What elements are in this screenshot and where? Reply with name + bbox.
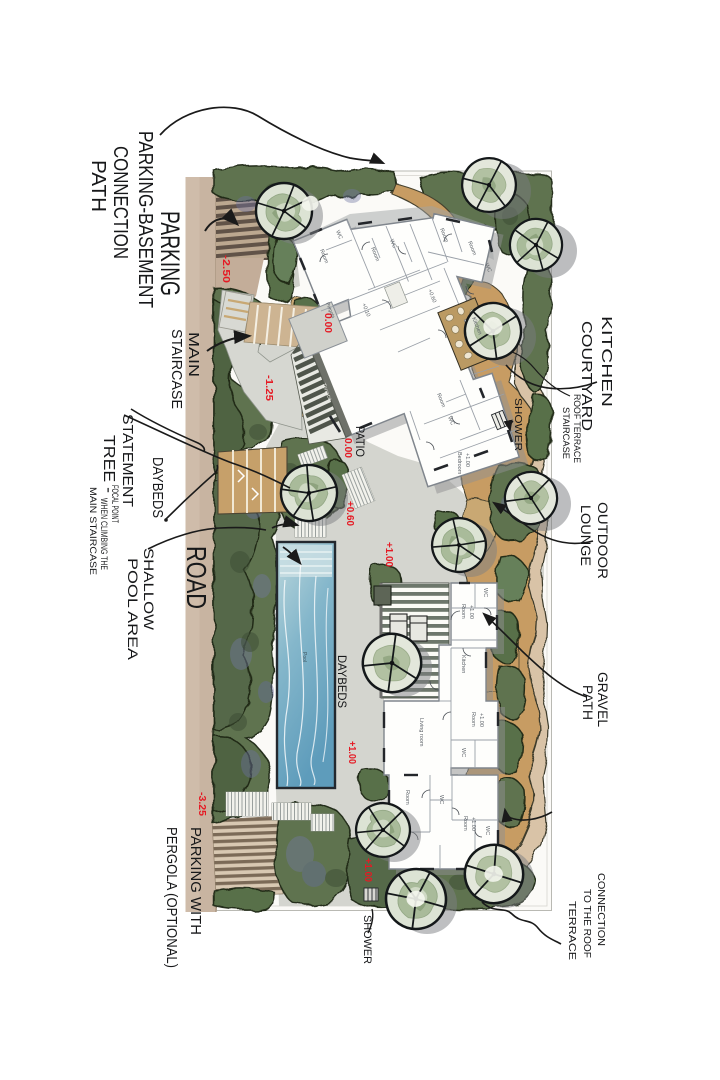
svg-text:MAIN: MAIN <box>185 332 202 377</box>
svg-text:WC: WC <box>484 826 490 835</box>
svg-text:OUTDOOR: OUTDOOR <box>595 502 611 579</box>
svg-text:+1.00: +1.00 <box>464 453 470 467</box>
svg-text:PATH: PATH <box>87 160 109 212</box>
svg-text:+1.00: +1.00 <box>478 713 484 727</box>
svg-text:+1.00: +1.00 <box>468 605 474 619</box>
svg-text:GRAVEL: GRAVEL <box>595 672 611 727</box>
svg-text:PERGOLA (OPTIONAL): PERGOLA (OPTIONAL) <box>163 827 180 968</box>
svg-text:PARKING WITH: PARKING WITH <box>187 827 204 935</box>
svg-text:POOL AREA: POOL AREA <box>125 558 141 661</box>
svg-text:KITCHEN: KITCHEN <box>598 316 615 407</box>
svg-text:DAYBEDS: DAYBEDS <box>335 655 349 708</box>
svg-text:Bedroom: Bedroom <box>456 452 462 475</box>
svg-text:WHEN CLIMBING THE: WHEN CLIMBING THE <box>99 498 109 570</box>
svg-text:Room: Room <box>460 604 466 619</box>
svg-text:WC: WC <box>482 588 488 597</box>
svg-text:CONNECTION: CONNECTION <box>109 146 131 259</box>
svg-text:FOCAL POINT: FOCAL POINT <box>110 485 120 523</box>
svg-text:Room: Room <box>404 790 410 805</box>
svg-text:LOUNGE: LOUNGE <box>578 505 594 566</box>
svg-text:Room: Room <box>470 712 476 727</box>
svg-text:+0.60: +0.60 <box>344 501 355 526</box>
svg-text:ROOF TERRACE: ROOF TERRACE <box>572 394 582 463</box>
svg-text:WC: WC <box>460 748 466 757</box>
svg-text:TO THE ROOF: TO THE ROOF <box>581 889 592 958</box>
svg-text:STAIRCASE: STAIRCASE <box>561 407 571 459</box>
svg-text:SHOWER: SHOWER <box>512 398 524 451</box>
svg-text:Kitchen: Kitchen <box>460 655 466 673</box>
svg-text:STAIRCASE: STAIRCASE <box>168 329 185 409</box>
svg-text:0.00: 0.00 <box>342 438 353 458</box>
svg-text:ROAD: ROAD <box>181 546 212 609</box>
svg-text:CONNECTION: CONNECTION <box>595 873 606 946</box>
svg-text:STATEMENT: STATEMENT <box>119 414 136 507</box>
svg-text:-1.25: -1.25 <box>263 375 274 401</box>
svg-text:-3.25: -3.25 <box>196 792 207 816</box>
svg-text:PARKING-BASEMENT: PARKING-BASEMENT <box>134 131 156 308</box>
svg-text:+1.00: +1.00 <box>470 817 476 831</box>
svg-text:Pool: Pool <box>301 652 307 662</box>
svg-text:Room: Room <box>462 816 468 831</box>
svg-text:SHOWER: SHOWER <box>361 915 373 964</box>
svg-text:+1.00: +1.00 <box>362 858 373 882</box>
svg-text:TERRACE: TERRACE <box>566 901 577 960</box>
svg-text:Living room: Living room <box>418 718 424 747</box>
svg-text:WC: WC <box>438 795 444 804</box>
svg-text:+1.00: +1.00 <box>383 542 394 567</box>
svg-text:SHALLOW: SHALLOW <box>141 548 157 631</box>
svg-text:PATH: PATH <box>580 685 596 720</box>
svg-text:+1.00: +1.00 <box>346 741 357 764</box>
svg-text:PARKING: PARKING <box>155 211 185 296</box>
svg-text:DAYBEDS: DAYBEDS <box>149 457 166 518</box>
svg-text:-2.50: -2.50 <box>220 255 231 284</box>
svg-text:MAIN STAIRCASE: MAIN STAIRCASE <box>88 487 98 575</box>
svg-text:PATIO: PATIO <box>353 426 367 457</box>
